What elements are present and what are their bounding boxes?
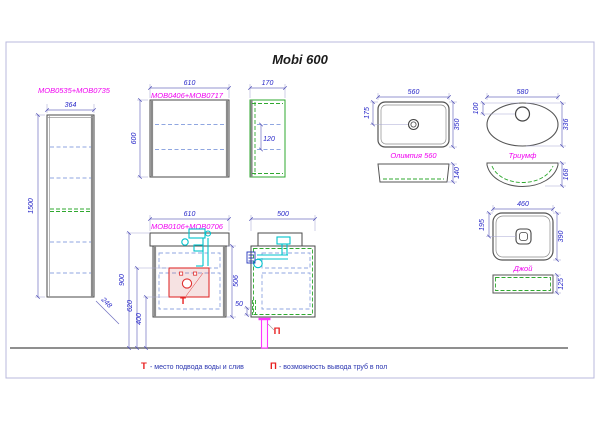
vanity-620-dim: 620 — [127, 300, 134, 312]
p-marker: П — [274, 326, 281, 337]
triumf-label: Триумф — [509, 151, 537, 160]
technical-drawing-sheet: Mobi 600 MOB0535+MOB0735 364 1500 248 61… — [0, 0, 600, 424]
wall-cabinet-side-depth-dim: 170 — [262, 80, 274, 87]
tall-cabinet-width-dim: 364 — [65, 102, 77, 109]
tall-cabinet-height-dim: 1500 — [28, 198, 35, 214]
joy-drain-dim: 195 — [479, 219, 486, 231]
legend: Т - место подвода воды и слив П - возмож… — [141, 361, 387, 372]
olimpia-height-dim: 140 — [454, 167, 461, 179]
drain-icon — [409, 120, 419, 130]
olimpia-label: Олимпия 560 — [390, 151, 437, 160]
joy-height-dim: 125 — [558, 278, 565, 290]
triumf-drain-dim: 100 — [473, 103, 480, 115]
wall-cabinet-side-view: 170 120 — [250, 80, 285, 177]
wall-cabinet-inner-dim: 120 — [263, 136, 275, 143]
vanity-height-dim: 506 — [233, 275, 240, 287]
joy-label: Джой — [513, 264, 534, 273]
drain-point — [182, 279, 191, 288]
sink-olimpia-view: 560 175 350 Олимпия 560 140 — [364, 89, 461, 182]
olimpia-width-dim: 560 — [408, 89, 420, 96]
triumf-height-dim: 168 — [563, 169, 570, 181]
triumf-side-view — [487, 163, 558, 187]
vanity-side-body — [251, 246, 315, 317]
legend-p-symbol: П — [270, 361, 277, 372]
wall-cabinet-front-view: 610 MOB0406+MOB0717 600 — [131, 80, 229, 177]
sink-triumf-view: 580 100 336 Триумф 168 — [473, 89, 570, 187]
vanity-front-view: 610 MOB0106+MOB0706 Т 506 — [119, 211, 240, 348]
sink-joy-view: 460 195 390 Джой 125 — [479, 201, 565, 293]
supply-point — [180, 272, 183, 275]
vanity-label: MOB0106+MOB0706 — [151, 222, 224, 231]
vanity-400-dim: 400 — [136, 313, 143, 325]
wall-cabinet-label: MOB0406+MOB0717 — [151, 91, 224, 100]
joy-width-dim: 460 — [517, 201, 529, 208]
drain-icon — [516, 229, 531, 244]
olimpia-depth-dim: 350 — [454, 119, 461, 131]
vanity-side-view: 500 50 П — [235, 211, 315, 348]
drain-icon — [516, 107, 530, 121]
triumf-width-dim: 580 — [517, 89, 529, 96]
floor-pipe — [262, 319, 268, 348]
vanity-width-dim: 610 — [184, 211, 196, 218]
legend-t-symbol: Т — [141, 361, 147, 372]
supply-point — [194, 272, 197, 275]
joy-depth-dim: 390 — [558, 231, 565, 243]
tall-cabinet-view: MOB0535+MOB0735 364 1500 248 — [28, 86, 119, 324]
page-title: Mobi 600 — [272, 52, 328, 67]
wall-cabinet-height-dim: 600 — [131, 133, 138, 145]
vanity-side-depth-dim: 500 — [277, 211, 289, 218]
legend-p-text: - возможность вывода труб в пол — [279, 363, 387, 371]
vanity-900-dim: 900 — [119, 274, 126, 286]
wall-cabinet-width-dim: 610 — [184, 80, 196, 87]
tall-cabinet-label: MOB0535+MOB0735 — [38, 86, 111, 95]
tall-cabinet-body — [47, 115, 94, 297]
drawing-canvas: Mobi 600 MOB0535+MOB0735 364 1500 248 61… — [0, 0, 600, 424]
vanity-gap-dim: 50 — [235, 301, 243, 308]
triumf-depth-dim: 336 — [563, 119, 570, 131]
wall-cabinet-body — [150, 100, 229, 177]
tall-cabinet-depth-dim: 248 — [99, 296, 113, 310]
t-marker: Т — [180, 296, 186, 307]
olimpia-drain-dim: 175 — [364, 107, 371, 119]
legend-t-text: - место подвода воды и слив — [150, 364, 244, 371]
